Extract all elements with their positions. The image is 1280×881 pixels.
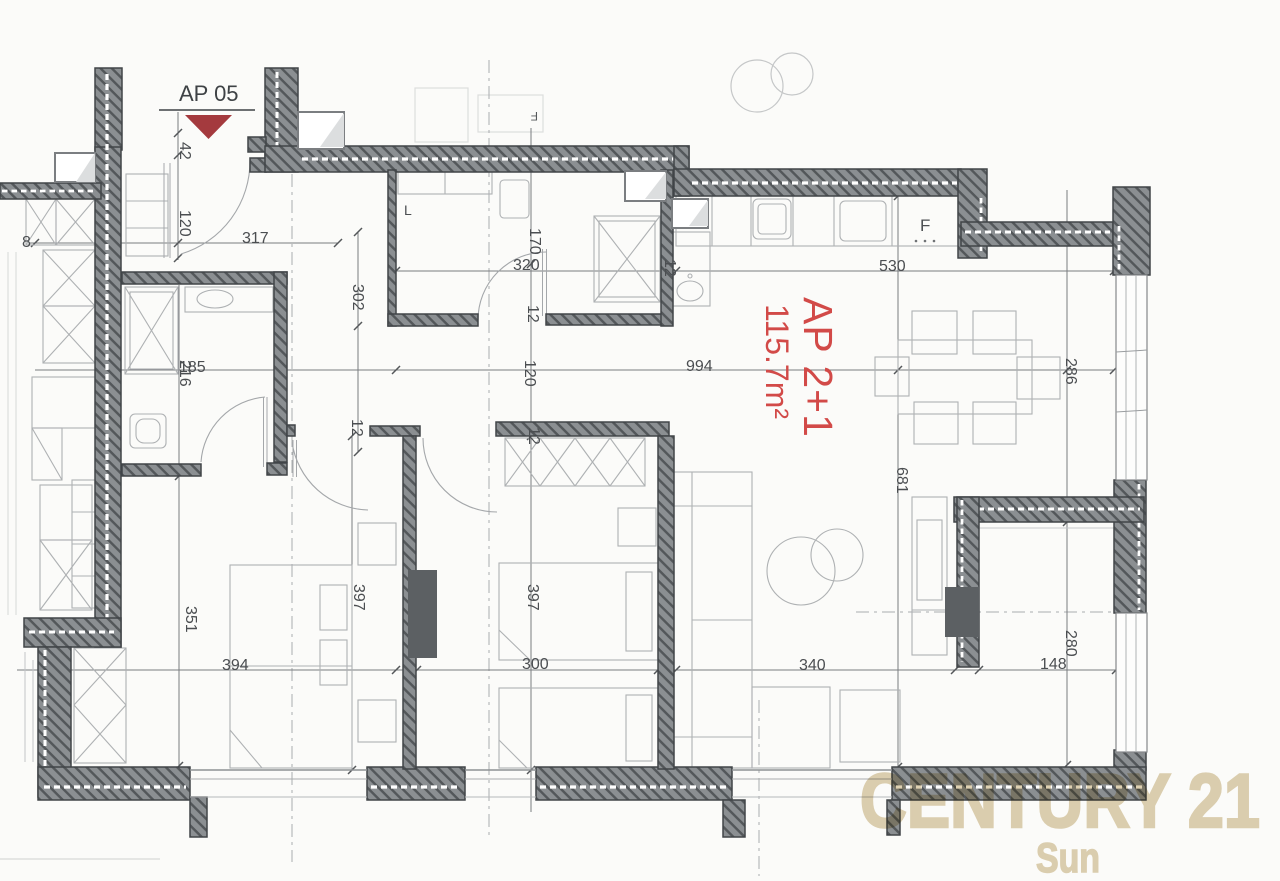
svg-text:12: 12 [348, 419, 365, 437]
svg-text:120: 120 [521, 360, 538, 387]
svg-text:12: 12 [661, 259, 678, 277]
svg-text:F: F [531, 109, 538, 123]
svg-text:340: 340 [799, 657, 826, 674]
svg-text:AP 2+1: AP 2+1 [795, 297, 841, 438]
svg-text:216: 216 [176, 360, 193, 387]
svg-text:530: 530 [879, 258, 906, 275]
svg-text:115.7m²: 115.7m² [759, 304, 795, 419]
svg-text:148: 148 [1040, 656, 1067, 673]
svg-text:12: 12 [525, 427, 542, 445]
svg-text:681: 681 [893, 467, 910, 494]
svg-text:351: 351 [182, 606, 199, 633]
svg-text:317: 317 [242, 230, 269, 247]
svg-text:397: 397 [350, 584, 367, 611]
svg-text:302: 302 [349, 284, 366, 311]
svg-text:397: 397 [524, 584, 541, 611]
svg-text:F: F [920, 216, 930, 235]
svg-text:L: L [404, 202, 412, 218]
svg-text:320: 320 [513, 257, 540, 274]
svg-text:994: 994 [686, 358, 713, 375]
svg-text:170: 170 [526, 228, 543, 255]
svg-text:286: 286 [1062, 358, 1079, 385]
svg-text:12: 12 [524, 305, 541, 323]
svg-text:8: 8 [22, 234, 31, 251]
svg-text:280: 280 [1062, 630, 1079, 657]
svg-text:42: 42 [176, 142, 193, 160]
svg-text:394: 394 [222, 657, 249, 674]
svg-text:AP 05: AP 05 [179, 81, 239, 106]
svg-text:CENTURY 21: CENTURY 21 [860, 759, 1260, 844]
svg-text:300: 300 [522, 656, 549, 673]
svg-text:120: 120 [176, 210, 193, 237]
svg-text:Sun: Sun [1036, 834, 1100, 881]
